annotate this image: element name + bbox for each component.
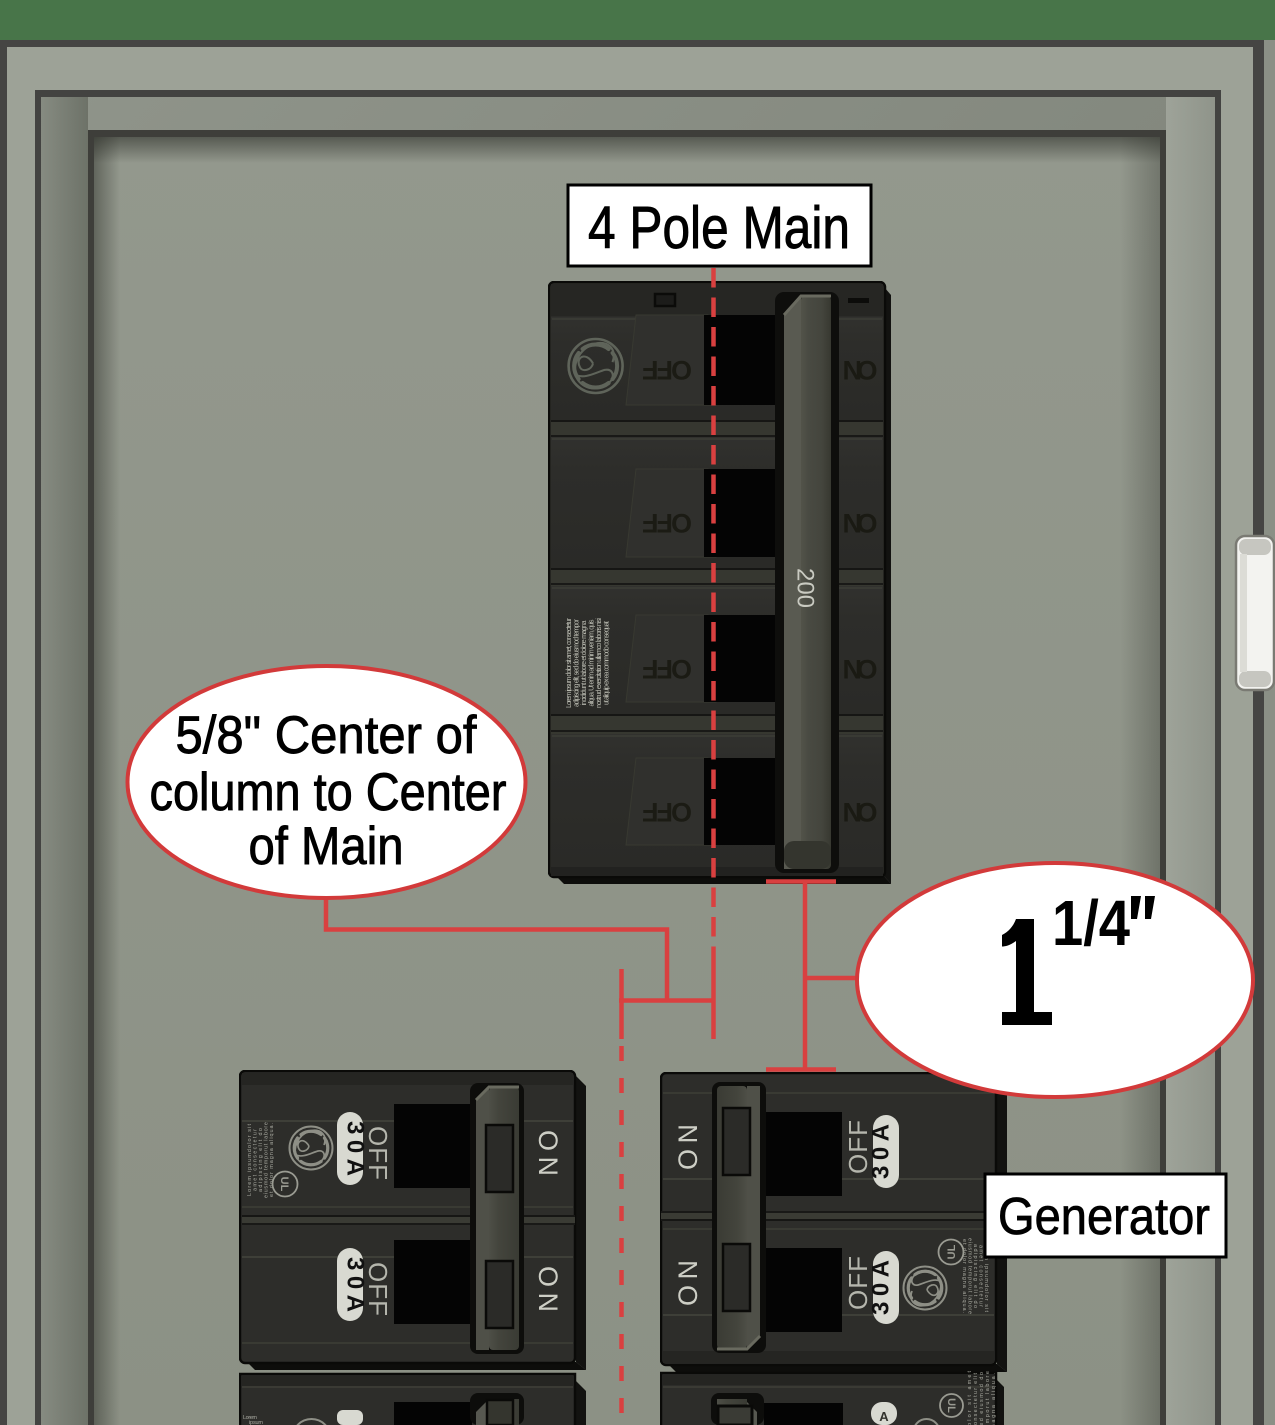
svg-text:Generator: Generator [998,1188,1210,1246]
svg-text:of Main: of Main [249,817,404,876]
svg-text:4 Pole Main: 4 Pole Main [588,195,850,261]
svg-text:column to Center: column to Center [150,763,507,822]
svg-text:1/4: 1/4 [1052,887,1130,959]
svg-text:5/8" Center of: 5/8" Center of [176,706,477,765]
